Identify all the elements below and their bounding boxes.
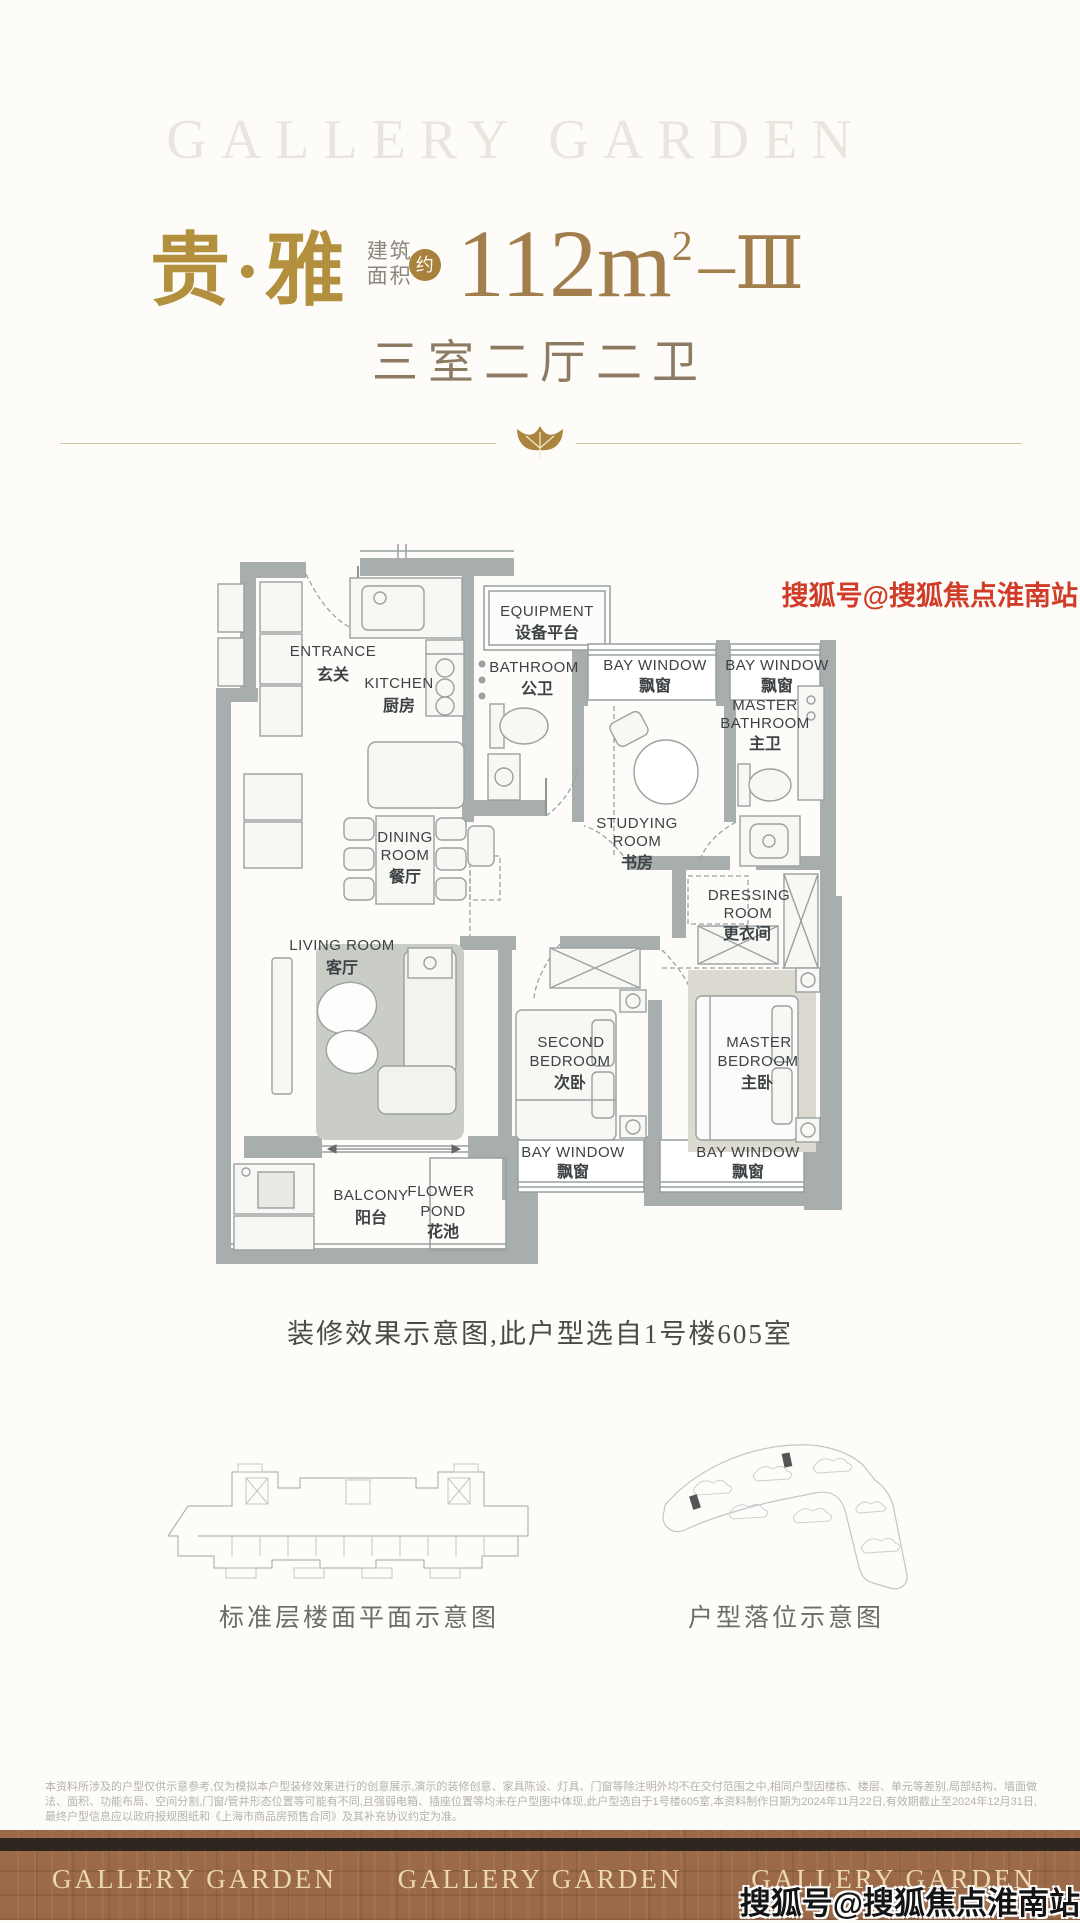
label-equipment-cn: 设备平台 (515, 623, 579, 642)
label-dining-en2: ROOM (381, 847, 430, 864)
footer-dark-stripe (0, 1838, 1080, 1851)
label-bay3-en: BAY WINDOW (521, 1144, 625, 1161)
floor-plan: ENTRANCE 玄关 KITCHEN 厨房 EQUIPMENT 设备平台 BA… (200, 540, 865, 1295)
layout-spec: 三室二厅二卫 (0, 326, 1080, 392)
label-bay3-cn: 飘窗 (557, 1162, 589, 1181)
unit-title: 贵·雅 (150, 206, 349, 322)
label-masterbath-cn: 主卫 (749, 734, 781, 753)
label-flower-en1: FLOWER (407, 1183, 474, 1200)
label-living-en: LIVING ROOM (289, 937, 395, 954)
label-flower-cn: 花池 (427, 1222, 459, 1241)
label-masterbed-en2: BEDROOM (717, 1053, 798, 1070)
footer-brand-left: GALLERY GARDEN (52, 1864, 337, 1895)
area-superscript: 2 (672, 224, 693, 270)
label-secondbed-en2: BEDROOM (529, 1053, 610, 1070)
label-equipment-en: EQUIPMENT (500, 603, 594, 620)
label-bay4-en: BAY WINDOW (696, 1144, 800, 1161)
standard-floor-diagram (168, 1438, 548, 1588)
approx-badge: 约 (409, 249, 441, 281)
label-dressing-cn: 更衣间 (723, 924, 771, 943)
label-flower-en2: POND (420, 1203, 465, 1220)
label-balcony-cn: 阳台 (355, 1208, 387, 1227)
label-bay2-en: BAY WINDOW (725, 657, 829, 674)
label-dressing-en2: ROOM (724, 905, 773, 922)
divider-line-left (60, 443, 496, 444)
area-value: 112m2 (457, 216, 693, 312)
ginkgo-fan-icon (514, 424, 566, 464)
disclaimer-text: 本资料所涉及的户型仅供示意参考,仅为模拟本户型装修效果进行的创意展示,演示的装修… (45, 1780, 1037, 1825)
label-entrance-en: ENTRANCE (290, 643, 377, 660)
label-bathroom-cn: 公卫 (521, 680, 553, 698)
label-bay2-cn: 飘窗 (761, 676, 793, 695)
label-study-cn: 书房 (621, 853, 653, 872)
label-balcony-en: BALCONY (333, 1187, 408, 1204)
label-dining-en1: DINING (377, 829, 433, 846)
label-secondbed-en1: SECOND (537, 1034, 604, 1051)
label-living-cn: 客厅 (326, 958, 358, 977)
area-label-line1: 建筑 (367, 239, 413, 264)
poster-page: { "header": { "brand_watermark": "GALLER… (0, 0, 1080, 1920)
label-study-en1: STUDYING (596, 815, 678, 832)
label-study-en2: ROOM (613, 833, 662, 850)
label-masterbath-en2: BATHROOM (720, 715, 810, 732)
area-suffix: –Ⅲ (699, 228, 804, 300)
label-masterbath-en1: MASTER (732, 697, 798, 714)
label-masterbed-cn: 主卧 (741, 1073, 773, 1092)
divider-line-right (576, 443, 1022, 444)
site-location-caption: 户型落位示意图 (646, 1598, 926, 1634)
area-label-line2: 面积 (367, 264, 413, 289)
label-bathroom-en: BATHROOM (489, 659, 579, 676)
label-dining-cn: 餐厅 (388, 867, 421, 886)
standard-floor-caption: 标准层楼面平面示意图 (169, 1598, 549, 1634)
footer-brand-center: GALLERY GARDEN (398, 1864, 683, 1895)
site-location-diagram (635, 1425, 925, 1600)
label-secondbed-cn: 次卧 (554, 1073, 586, 1092)
area-label: 建筑 面积 约 (367, 239, 433, 289)
label-bay4-cn: 飘窗 (732, 1162, 764, 1181)
plan-caption: 装修效果示意图,此户型选自1号楼605室 (0, 1312, 1080, 1351)
label-dressing-en1: DRESSING (708, 887, 790, 904)
label-bay1-en: BAY WINDOW (603, 657, 707, 674)
label-bay1-cn: 飘窗 (639, 676, 671, 695)
label-masterbed-en1: MASTER (726, 1034, 792, 1051)
unit-title-row: 贵·雅 建筑 面积 约 112m2 –Ⅲ (150, 206, 804, 322)
label-kitchen-en: KITCHEN (364, 675, 433, 692)
label-entrance-cn: 玄关 (317, 665, 349, 684)
sohu-watermark-bottom: 搜狐号@搜狐焦点淮南站 (740, 1878, 1080, 1923)
label-kitchen-cn: 厨房 (383, 696, 415, 715)
brand-watermark-text: GALLERY GARDEN (0, 108, 1032, 172)
